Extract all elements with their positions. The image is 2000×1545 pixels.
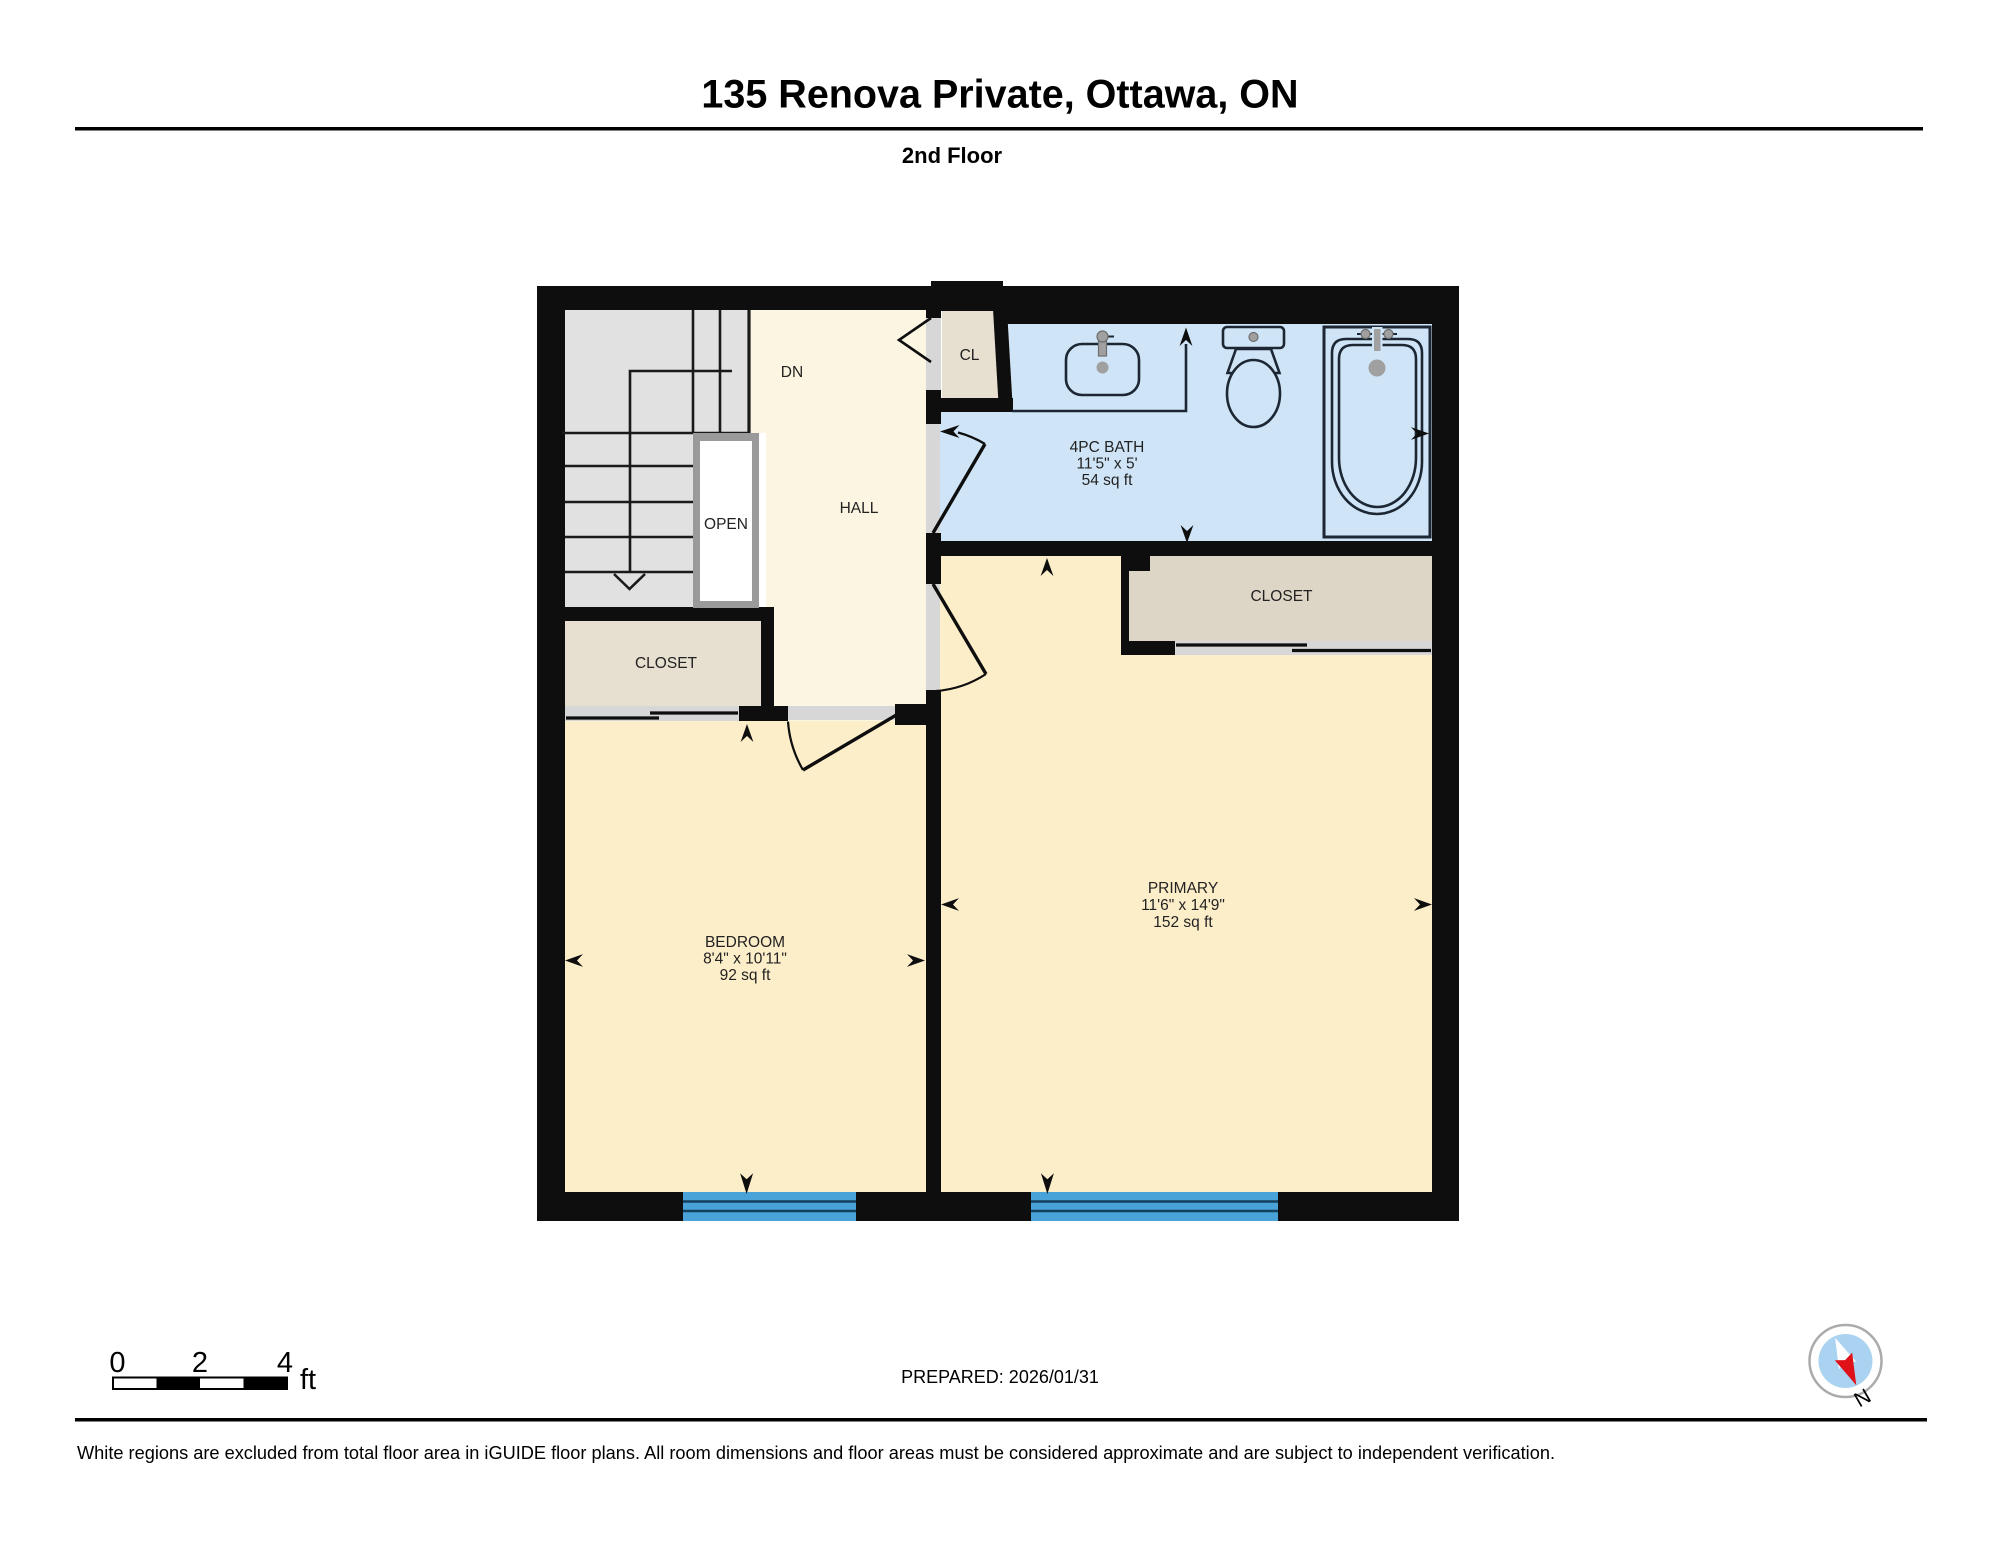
svg-text:CL: CL [960, 347, 980, 364]
svg-text:152 sq ft: 152 sq ft [1153, 914, 1213, 931]
svg-text:54 sq ft: 54 sq ft [1082, 472, 1134, 489]
svg-text:11'6" x 14'9": 11'6" x 14'9" [1141, 897, 1225, 914]
svg-text:DN: DN [781, 364, 803, 381]
svg-text:PREPARED: 2026/01/31: PREPARED: 2026/01/31 [901, 1367, 1099, 1387]
svg-text:White regions are excluded fro: White regions are excluded from total fl… [77, 1443, 1555, 1463]
svg-text:4: 4 [277, 1347, 293, 1379]
svg-text:92 sq ft: 92 sq ft [720, 967, 772, 984]
svg-text:11'5" x 5': 11'5" x 5' [1076, 456, 1137, 473]
svg-text:CLOSET: CLOSET [635, 655, 698, 672]
svg-text:4PC BATH: 4PC BATH [1070, 439, 1145, 456]
svg-text:8'4" x 10'11": 8'4" x 10'11" [703, 951, 787, 968]
svg-text:PRIMARY: PRIMARY [1148, 880, 1218, 897]
svg-text:ft: ft [300, 1364, 316, 1396]
svg-text:2: 2 [192, 1347, 208, 1379]
svg-text:0: 0 [109, 1347, 125, 1379]
svg-text:CLOSET: CLOSET [1250, 588, 1313, 605]
svg-text:OPEN: OPEN [704, 516, 748, 533]
svg-text:2nd Floor: 2nd Floor [902, 143, 1003, 168]
svg-text:BEDROOM: BEDROOM [705, 934, 785, 951]
svg-text:135 Renova Private, Ottawa, ON: 135 Renova Private, Ottawa, ON [701, 73, 1298, 117]
svg-text:HALL: HALL [840, 500, 879, 517]
